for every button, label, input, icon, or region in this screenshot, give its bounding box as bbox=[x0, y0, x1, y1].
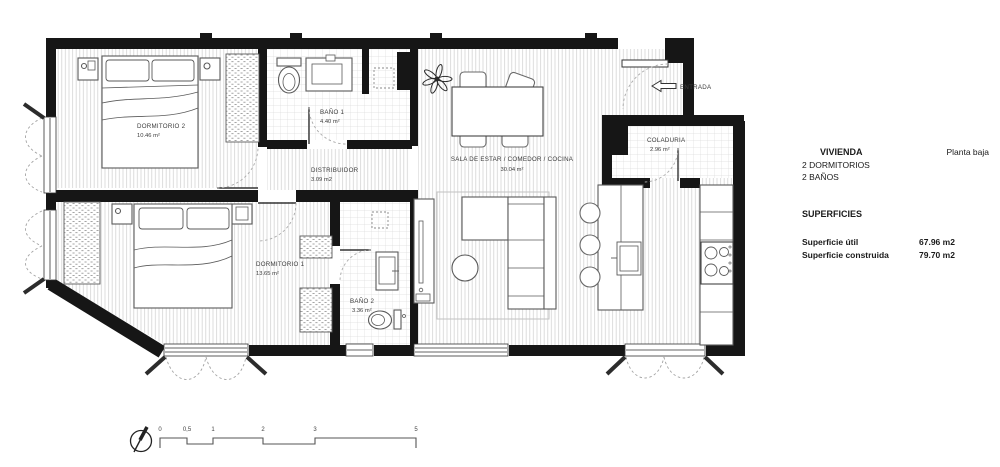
window-sala bbox=[414, 344, 508, 356]
facade-pillar bbox=[430, 33, 442, 39]
scale-tick: 5 bbox=[414, 427, 418, 433]
wall-bano1-shower-stub bbox=[362, 44, 369, 94]
bar-stools bbox=[580, 203, 600, 287]
pillow bbox=[152, 60, 194, 81]
surface-construida-value: 79.70 m2 bbox=[919, 249, 955, 262]
stool bbox=[580, 203, 600, 223]
north-arrow-icon bbox=[131, 427, 152, 452]
wardrobe bbox=[226, 54, 259, 142]
side-table bbox=[452, 255, 478, 281]
scale-bar: 0 0,5 1 2 3 5 bbox=[131, 427, 419, 452]
wardrobe bbox=[64, 202, 100, 284]
scale-tick: 2 bbox=[261, 427, 265, 433]
wall-bottom-b bbox=[374, 345, 414, 356]
scale-tick: 1 bbox=[211, 427, 215, 433]
sink-icon bbox=[306, 55, 352, 91]
floor-level-label: Planta baja bbox=[946, 146, 989, 159]
label-dormitorio1: DORMITORIO 1 bbox=[256, 261, 305, 268]
pillow bbox=[139, 208, 183, 229]
area-distribuidor: 3.09 m2 bbox=[311, 177, 332, 183]
wall-bedrooms-divider bbox=[52, 190, 258, 202]
surfaces-heading: SUPERFICIES bbox=[802, 208, 989, 221]
cooktop-icon bbox=[701, 242, 733, 284]
label-dormitorio2: DORMITORIO 2 bbox=[137, 123, 186, 130]
label-distribuidor: DISTRIBUIDOR bbox=[311, 167, 359, 174]
wall-shaft bbox=[397, 52, 411, 90]
nightstand bbox=[112, 204, 132, 224]
stool bbox=[580, 235, 600, 255]
window-dorm1-bottom bbox=[164, 344, 248, 356]
nightstand bbox=[200, 58, 220, 80]
surface-util-value: 67.96 m2 bbox=[919, 236, 955, 249]
wall-left-a bbox=[46, 38, 56, 117]
facade-pillar bbox=[200, 33, 212, 39]
closet bbox=[300, 236, 332, 258]
facade-pillar bbox=[290, 33, 302, 39]
scale-tick: 3 bbox=[313, 427, 317, 433]
label-coladuria: COLADURIA bbox=[647, 137, 686, 144]
label-bano1: BAÑO 1 bbox=[320, 109, 345, 116]
area-dormitorio2: 10.46 m² bbox=[137, 133, 160, 139]
wall-coladuria-bottom-b bbox=[680, 178, 700, 188]
wall-bano1-south-a bbox=[267, 140, 307, 149]
area-bano2: 3.36 m² bbox=[352, 308, 372, 314]
surface-util-label: Superficie útil bbox=[802, 236, 919, 249]
toilet-icon bbox=[369, 310, 406, 329]
area-coladuria: 2.96 m² bbox=[650, 147, 670, 153]
coladuria-floor bbox=[612, 126, 733, 178]
wall-bottom-c bbox=[509, 345, 625, 356]
pillow bbox=[106, 60, 149, 81]
wall-top bbox=[46, 38, 618, 49]
sink-icon bbox=[376, 252, 399, 290]
wall-bano1-south-b bbox=[347, 140, 412, 149]
label-bano2: BAÑO 2 bbox=[350, 298, 375, 305]
toilet-icon bbox=[277, 58, 301, 93]
tall-cabinet bbox=[414, 199, 434, 303]
label-sala: SALA DE ESTAR / COMEDOR / COCINA bbox=[451, 156, 574, 163]
scale-tick: 0 bbox=[158, 427, 162, 433]
kitchen-island bbox=[598, 185, 643, 310]
stool bbox=[580, 267, 600, 287]
surface-construida-row: Superficie construida 79.70 m2 bbox=[802, 249, 989, 262]
bedroom-count-label: 2 DORMITORIOS bbox=[802, 159, 989, 172]
entrance-label: ENTRADA bbox=[680, 84, 712, 91]
floor-plan-sheet: ENTRADA DORMITORIO 2 10.46 m² DORMITORIO… bbox=[0, 0, 1000, 467]
wall-east-upper bbox=[410, 44, 418, 146]
wall-hall-south bbox=[296, 190, 418, 202]
facade-pillar bbox=[585, 33, 597, 39]
kitchen-counter bbox=[700, 185, 733, 345]
sofa-armrest bbox=[544, 197, 556, 309]
area-bano1: 4.40 m² bbox=[320, 119, 340, 125]
dwelling-title: VIVIENDA bbox=[802, 146, 863, 159]
scale-bar-line bbox=[160, 438, 416, 448]
info-panel: VIVIENDA Planta baja 2 DORMITORIOS 2 BAÑ… bbox=[802, 146, 989, 261]
closet bbox=[300, 288, 332, 332]
wall-bottom-d bbox=[706, 345, 745, 356]
sofa-body bbox=[508, 197, 544, 309]
area-dormitorio1: 13.65 m² bbox=[256, 271, 279, 277]
scale-tick: 0,5 bbox=[183, 427, 192, 433]
wall-entry-right bbox=[683, 38, 694, 122]
bathroom-count-label: 2 BAÑOS bbox=[802, 171, 989, 184]
area-sala: 30.04 m² bbox=[501, 167, 524, 173]
wall-coladuria-left bbox=[602, 115, 612, 188]
dining-table bbox=[452, 87, 543, 136]
surface-construida-label: Superficie construida bbox=[802, 249, 919, 262]
pillow bbox=[187, 208, 229, 229]
info-title-row: VIVIENDA Planta baja bbox=[802, 146, 989, 159]
wall-right-outer bbox=[733, 121, 745, 356]
sofa-chaise bbox=[462, 197, 508, 240]
surface-util-row: Superficie útil 67.96 m2 bbox=[802, 236, 989, 249]
